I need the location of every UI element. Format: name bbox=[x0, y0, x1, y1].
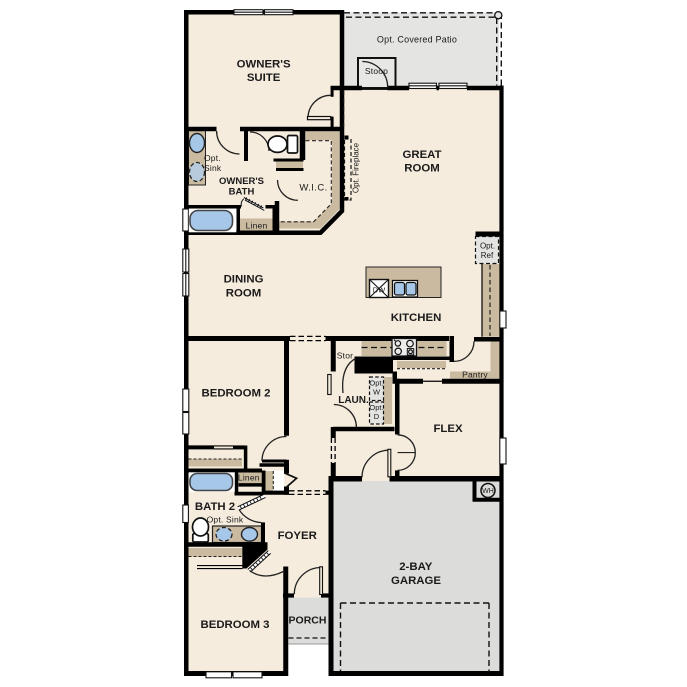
svg-text:OWNER'S: OWNER'S bbox=[219, 176, 264, 187]
svg-text:WH: WH bbox=[482, 488, 494, 495]
svg-text:D: D bbox=[374, 412, 380, 421]
svg-text:FLEX: FLEX bbox=[433, 423, 463, 435]
svg-text:Opt. Sink: Opt. Sink bbox=[207, 515, 244, 525]
svg-text:Opt.: Opt. bbox=[369, 379, 383, 388]
svg-text:BATH: BATH bbox=[229, 187, 255, 198]
svg-text:Opt.: Opt. bbox=[480, 242, 495, 251]
svg-text:Opt.: Opt. bbox=[204, 153, 221, 163]
svg-text:Stor: Stor bbox=[337, 351, 353, 361]
svg-text:BEDROOM 2: BEDROOM 2 bbox=[202, 388, 271, 400]
svg-text:Opt. Fireplace: Opt. Fireplace bbox=[352, 142, 361, 193]
svg-text:Opt. Covered Patio: Opt. Covered Patio bbox=[377, 35, 457, 45]
svg-text:FOYER: FOYER bbox=[278, 530, 317, 542]
svg-text:DINING: DINING bbox=[224, 273, 264, 285]
svg-text:W: W bbox=[373, 388, 381, 397]
svg-text:2-BAY: 2-BAY bbox=[399, 561, 433, 573]
svg-text:Ref: Ref bbox=[481, 251, 494, 260]
svg-text:Linen: Linen bbox=[246, 221, 268, 231]
svg-text:Stoop: Stoop bbox=[365, 66, 388, 76]
svg-text:W.I.C.: W.I.C. bbox=[299, 183, 327, 194]
svg-text:GREAT: GREAT bbox=[402, 149, 441, 161]
svg-text:ROOM: ROOM bbox=[226, 288, 261, 300]
svg-text:ROOM: ROOM bbox=[404, 163, 439, 175]
svg-text:SUITE: SUITE bbox=[247, 72, 281, 84]
svg-text:Sink: Sink bbox=[204, 163, 222, 173]
svg-text:KITCHEN: KITCHEN bbox=[391, 312, 442, 324]
svg-text:Opt.: Opt. bbox=[369, 403, 383, 412]
svg-text:BEDROOM 3: BEDROOM 3 bbox=[201, 619, 270, 631]
svg-text:GARAGE: GARAGE bbox=[391, 575, 441, 587]
svg-text:Pantry: Pantry bbox=[462, 370, 488, 380]
svg-text:LAUN.: LAUN. bbox=[338, 395, 369, 406]
svg-text:PORCH: PORCH bbox=[289, 615, 327, 627]
svg-text:Linen: Linen bbox=[238, 473, 260, 483]
svg-text:OWNER'S: OWNER'S bbox=[237, 59, 291, 71]
svg-text:DW: DW bbox=[373, 286, 386, 295]
svg-text:BATH 2: BATH 2 bbox=[195, 501, 235, 513]
